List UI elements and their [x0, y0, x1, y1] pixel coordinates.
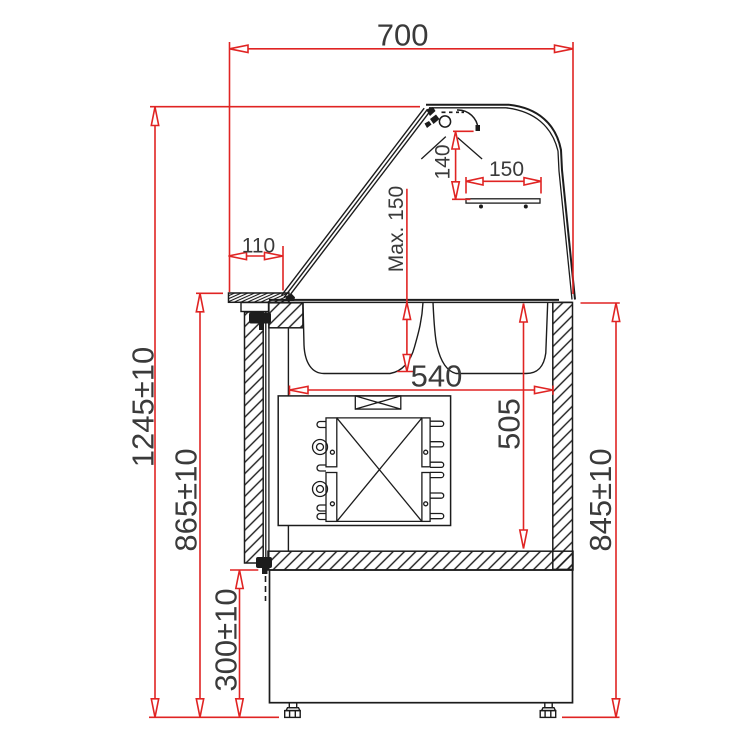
- svg-text:505: 505: [492, 398, 527, 450]
- svg-text:Max. 150: Max. 150: [385, 186, 408, 272]
- svg-text:1245±10: 1245±10: [126, 347, 161, 467]
- svg-text:700: 700: [377, 18, 429, 53]
- svg-text:150: 150: [489, 158, 524, 181]
- svg-text:865±10: 865±10: [169, 448, 204, 551]
- svg-text:845±10: 845±10: [583, 448, 618, 551]
- svg-text:300±10: 300±10: [209, 588, 244, 691]
- svg-text:540: 540: [411, 359, 463, 394]
- svg-text:110: 110: [242, 235, 275, 258]
- svg-text:140: 140: [432, 144, 455, 179]
